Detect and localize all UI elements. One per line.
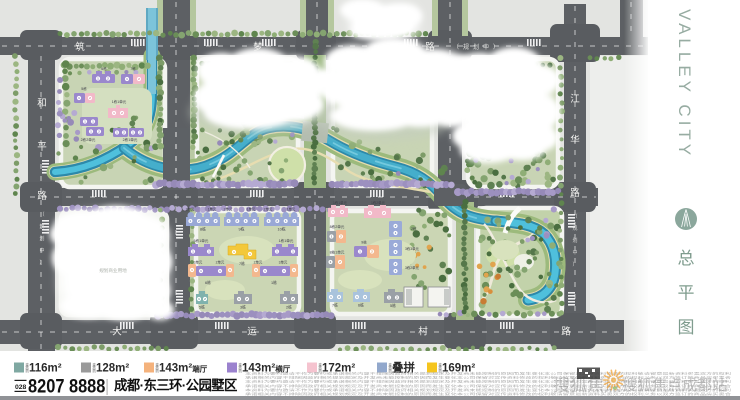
svg-text:路: 路 xyxy=(561,326,571,338)
svg-text:9栋: 9栋 xyxy=(361,240,367,245)
svg-text:2: 2 xyxy=(395,262,397,266)
svg-text:1: 1 xyxy=(90,130,92,134)
svg-text:10栋: 10栋 xyxy=(277,227,285,232)
svg-text:7栋: 7栋 xyxy=(239,261,245,266)
svg-text:1: 1 xyxy=(113,111,115,115)
svg-text:2: 2 xyxy=(236,219,238,223)
svg-text:路: 路 xyxy=(570,187,580,199)
svg-text:路: 路 xyxy=(37,190,47,202)
svg-text:7栋: 7栋 xyxy=(130,66,136,71)
svg-text:1: 1 xyxy=(356,295,358,299)
svg-text:规: 规 xyxy=(39,223,44,230)
svg-text:2: 2 xyxy=(138,77,140,81)
svg-text:7栋: 7栋 xyxy=(332,303,338,308)
svg-text:2: 2 xyxy=(107,77,109,81)
svg-text:1: 1 xyxy=(395,250,397,254)
svg-text:（: （ xyxy=(39,212,44,218)
svg-text:3栋2单元: 3栋2单元 xyxy=(405,265,420,270)
svg-text:6栋: 6栋 xyxy=(101,66,107,71)
svg-text:1: 1 xyxy=(283,269,285,273)
svg-text:1: 1 xyxy=(219,269,221,273)
svg-text:3: 3 xyxy=(338,295,340,299)
svg-text:2单元: 2单元 xyxy=(254,260,263,265)
svg-text:1: 1 xyxy=(369,211,371,215)
svg-text:2: 2 xyxy=(292,297,294,301)
svg-text:中: 中 xyxy=(572,249,577,256)
svg-text:总: 总 xyxy=(678,249,695,268)
svg-text:2单元: 2单元 xyxy=(216,260,225,265)
svg-text:1栋1单元: 1栋1单元 xyxy=(333,200,348,205)
svg-text:（规划中）: （规划中） xyxy=(453,43,503,51)
svg-text:华: 华 xyxy=(570,134,580,146)
svg-text:2: 2 xyxy=(123,131,125,135)
svg-text:VALLEY CITY: VALLEY CITY xyxy=(675,9,694,159)
svg-text:3单元: 3单元 xyxy=(279,260,288,265)
svg-text:江: 江 xyxy=(570,94,580,105)
svg-text:1: 1 xyxy=(268,219,270,223)
svg-text:1单元: 1单元 xyxy=(208,207,217,212)
svg-text:1: 1 xyxy=(200,269,202,273)
svg-text:5栋: 5栋 xyxy=(390,303,396,308)
svg-text:1: 1 xyxy=(245,219,247,223)
svg-text:梦: 梦 xyxy=(253,42,263,53)
svg-text:2: 2 xyxy=(254,219,256,223)
svg-text:1栋: 1栋 xyxy=(271,280,277,285)
svg-text:3: 3 xyxy=(341,210,343,214)
svg-text:5栋: 5栋 xyxy=(199,305,205,310)
svg-text:3栋: 3栋 xyxy=(240,305,246,310)
svg-text:1: 1 xyxy=(126,77,128,81)
svg-text:2: 2 xyxy=(339,260,341,264)
svg-text:1: 1 xyxy=(208,250,210,254)
svg-text:8栋2单元: 8栋2单元 xyxy=(330,224,345,229)
svg-text:1: 1 xyxy=(330,295,332,299)
svg-text:2栋2单元: 2栋2单元 xyxy=(81,137,96,142)
svg-text:图: 图 xyxy=(678,318,695,337)
svg-text:2单元: 2单元 xyxy=(186,207,195,212)
svg-text:大: 大 xyxy=(112,326,122,338)
svg-text:1: 1 xyxy=(190,219,192,223)
svg-text:1: 1 xyxy=(228,219,230,223)
svg-text:1: 1 xyxy=(97,77,99,81)
svg-text:2: 2 xyxy=(395,243,397,247)
svg-text:028: 028 xyxy=(15,384,27,391)
svg-text:3单元: 3单元 xyxy=(194,260,203,265)
svg-text:1: 1 xyxy=(116,131,118,135)
svg-text:2: 2 xyxy=(276,219,278,223)
svg-text:1: 1 xyxy=(285,219,287,223)
svg-text:1栋2单元: 1栋2单元 xyxy=(371,200,386,205)
svg-text:8栋1单元: 8栋1单元 xyxy=(330,250,345,255)
svg-text:划: 划 xyxy=(572,237,577,244)
svg-text:2: 2 xyxy=(98,130,100,134)
svg-text:成都·东三环·公园墅区: 成都·东三环·公园墅区 xyxy=(114,377,238,393)
svg-text:3: 3 xyxy=(364,295,366,299)
svg-text:平: 平 xyxy=(678,284,695,303)
svg-text:3栋3单元: 3栋3单元 xyxy=(405,246,420,251)
svg-text:1: 1 xyxy=(198,297,200,301)
svg-text:6栋1单元: 6栋1单元 xyxy=(194,238,209,243)
svg-text:1: 1 xyxy=(331,235,333,239)
svg-text:1: 1 xyxy=(388,296,390,300)
svg-text:2栋: 2栋 xyxy=(411,226,417,231)
svg-text:规: 规 xyxy=(572,225,577,232)
svg-text:143m²端厅: 143m²端厅 xyxy=(159,362,208,374)
svg-text:1: 1 xyxy=(293,268,295,272)
svg-text:1: 1 xyxy=(395,269,397,273)
svg-text:2: 2 xyxy=(383,211,385,215)
svg-text:1: 1 xyxy=(395,231,397,235)
svg-text:9栋: 9栋 xyxy=(239,227,245,232)
svg-text:1: 1 xyxy=(238,297,240,301)
svg-text:2: 2 xyxy=(340,235,342,239)
svg-text:2: 2 xyxy=(198,219,200,223)
svg-text:1栋1单元: 1栋1单元 xyxy=(112,99,127,104)
svg-text:1: 1 xyxy=(233,250,235,254)
svg-text:1: 1 xyxy=(192,250,194,254)
svg-text:2单元: 2单元 xyxy=(224,207,233,212)
svg-text:1: 1 xyxy=(284,297,286,301)
svg-text:1: 1 xyxy=(229,268,231,272)
svg-text:8栋: 8栋 xyxy=(200,227,206,232)
svg-text:中: 中 xyxy=(39,247,44,254)
svg-text:1: 1 xyxy=(332,210,334,214)
svg-text:6栋: 6栋 xyxy=(205,280,211,285)
svg-text:2: 2 xyxy=(89,96,91,100)
svg-text:1栋1单元: 1栋1单元 xyxy=(279,238,294,243)
svg-text:1: 1 xyxy=(191,268,193,272)
svg-text:1: 1 xyxy=(132,131,134,135)
svg-text:1: 1 xyxy=(359,250,361,254)
svg-text:2: 2 xyxy=(139,131,141,135)
svg-text:2栋1单元: 2栋1单元 xyxy=(123,137,138,142)
svg-text:1: 1 xyxy=(249,252,251,256)
svg-text:5栋: 5栋 xyxy=(81,86,87,91)
svg-text:2: 2 xyxy=(121,111,123,115)
svg-text:村: 村 xyxy=(418,326,428,338)
svg-text:8207 8888: 8207 8888 xyxy=(28,375,105,397)
svg-text:2: 2 xyxy=(371,250,373,254)
svg-text:2: 2 xyxy=(215,219,217,223)
svg-text:筑: 筑 xyxy=(75,41,85,53)
svg-text:和: 和 xyxy=(37,98,47,109)
svg-text:2: 2 xyxy=(294,219,296,223)
svg-text:）: ） xyxy=(572,262,577,268)
svg-text:128m²: 128m² xyxy=(96,362,129,374)
svg-text:）: ） xyxy=(39,260,44,266)
svg-text:划: 划 xyxy=(39,235,44,242)
svg-text:搜狐焦点成都站: 搜狐焦点成都站 xyxy=(622,377,727,394)
svg-text:1: 1 xyxy=(206,219,208,223)
svg-text:平: 平 xyxy=(37,142,47,153)
svg-text:1单元: 1单元 xyxy=(287,207,296,212)
svg-text:2: 2 xyxy=(395,224,397,228)
svg-text:运: 运 xyxy=(247,327,257,338)
svg-text:2单元: 2单元 xyxy=(264,207,273,212)
svg-text:116m²: 116m² xyxy=(29,362,62,374)
svg-text:1: 1 xyxy=(78,96,80,100)
svg-text:1单元: 1单元 xyxy=(247,207,256,212)
svg-text:2: 2 xyxy=(246,297,248,301)
svg-text:2栋: 2栋 xyxy=(286,305,292,310)
svg-text:1: 1 xyxy=(92,120,94,124)
svg-text:6栋: 6栋 xyxy=(358,303,364,308)
svg-text:1: 1 xyxy=(264,269,266,273)
svg-text:1: 1 xyxy=(330,260,332,264)
svg-text:1: 1 xyxy=(292,250,294,254)
svg-text:规划商业用地: 规划商业用地 xyxy=(99,267,127,274)
svg-text:1: 1 xyxy=(84,120,86,124)
svg-text:2: 2 xyxy=(204,297,206,301)
svg-text:1: 1 xyxy=(255,268,257,272)
svg-text:路: 路 xyxy=(425,41,435,53)
svg-text:2: 2 xyxy=(396,296,398,300)
svg-text:1: 1 xyxy=(276,250,278,254)
svg-text:（: （ xyxy=(572,214,577,220)
